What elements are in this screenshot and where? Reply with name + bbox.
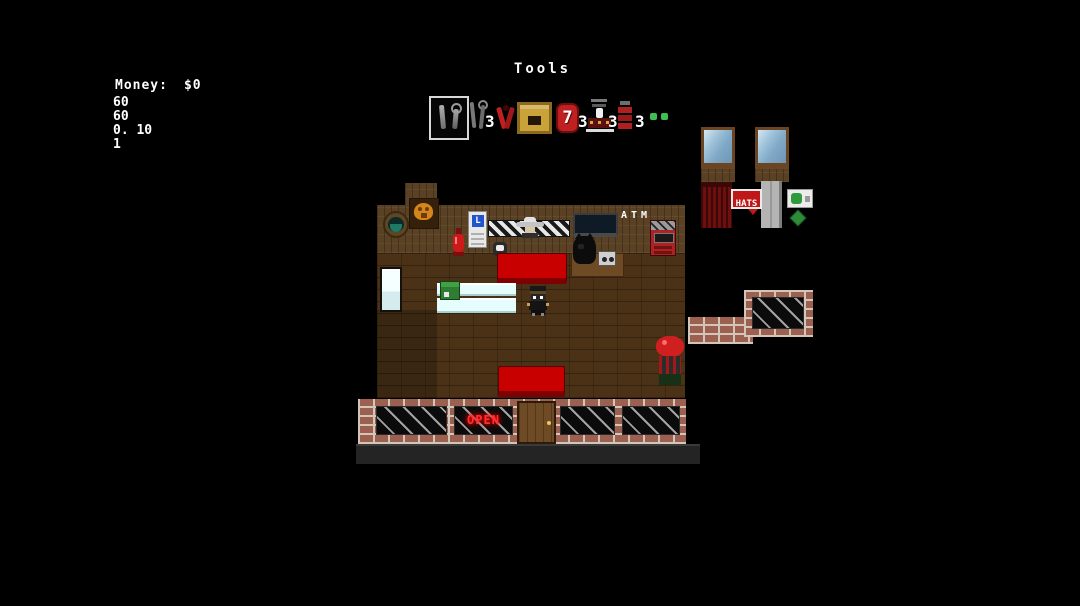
flower-highlight (662, 340, 667, 345)
cat-ear (586, 233, 594, 239)
grey-door[interactable] (761, 181, 782, 228)
storefront-window (622, 406, 680, 435)
wrench-icon (439, 105, 446, 129)
flower-pot (659, 356, 681, 374)
potted-flower (656, 336, 684, 386)
vendor-body (522, 233, 538, 238)
vendor-character[interactable] (516, 217, 544, 238)
dark-window (752, 297, 804, 329)
pet-face (496, 245, 504, 251)
red-couch (497, 253, 567, 284)
plant-icon (791, 193, 802, 204)
hats-sign-arrow-icon (748, 209, 758, 215)
atm-slot (654, 246, 672, 249)
screwdriver-icon (452, 109, 459, 129)
register-top (441, 282, 459, 287)
doorknob-icon (547, 421, 551, 425)
hats-sign-text: HATS (736, 199, 758, 209)
shelf-bar-icon (618, 123, 632, 129)
green-diamond-icon (790, 210, 807, 227)
extinguisher-highlight (455, 237, 457, 244)
floor-shadow (377, 310, 437, 398)
stat-line: 1 (113, 138, 152, 152)
player-character[interactable] (527, 286, 549, 318)
side-door[interactable] (380, 267, 402, 312)
money-value: $0 (184, 78, 202, 93)
register-key (444, 292, 449, 297)
green-dot-icon[interactable] (661, 113, 668, 120)
black-cat[interactable] (573, 236, 596, 264)
cat-highlight (578, 244, 584, 249)
green-dot-icon[interactable] (650, 113, 657, 120)
pretzel-sign (409, 198, 439, 229)
gold-dot-icon (590, 121, 593, 124)
toolbar-slot-crate[interactable] (517, 102, 552, 134)
toolbar-title: Tools (495, 61, 590, 77)
shelf-top-icon (620, 101, 630, 105)
stats-block: 60 60 0. 10 1 (113, 96, 152, 152)
hats-sign: HATS (731, 189, 762, 209)
sidewalk (356, 444, 700, 464)
display-counter-bottom (437, 298, 516, 313)
stat-line: 60 (113, 96, 152, 110)
machine-marquee-icon (591, 99, 607, 102)
storefront-window-open: OPEN (454, 406, 513, 435)
upper-window (701, 127, 735, 170)
radio-speaker (602, 257, 607, 262)
grey-door-seam (770, 181, 772, 228)
front-door[interactable] (517, 401, 556, 444)
atm-top-panel (651, 221, 675, 230)
plant-sign (787, 189, 813, 208)
atm-display (654, 233, 674, 243)
pretzel-hole (425, 207, 429, 211)
money-readout: Money: $0 (115, 78, 202, 93)
crate-highlight (520, 105, 549, 109)
toolbar-slot-red-pliers[interactable] (497, 104, 515, 132)
radio[interactable] (598, 251, 616, 266)
wood-band (701, 169, 735, 182)
hat-rack[interactable] (701, 182, 732, 228)
machine-figure-icon (596, 108, 603, 118)
cash-register[interactable] (440, 281, 460, 300)
pretzel-hole (418, 207, 422, 211)
slot-count: 3 (635, 112, 645, 131)
player-hand (546, 303, 549, 306)
toolbar-slot-red-shelf[interactable] (617, 101, 633, 133)
stat-line: 0. 10 (113, 124, 152, 138)
money-label: Money: (115, 78, 168, 93)
upper-window (755, 127, 789, 170)
red-couch (498, 366, 565, 397)
shelf-bar-icon (618, 107, 632, 113)
slot-count: 3 (485, 112, 495, 131)
shelf-bar-icon (618, 115, 632, 121)
toolbar-slot-seven-chip[interactable]: 7 (556, 103, 579, 133)
cat-ear (575, 233, 583, 239)
mini-fridge[interactable]: L (468, 211, 487, 248)
radio-speaker (609, 257, 614, 262)
crate-slot-icon (528, 116, 541, 125)
flower-bloom (656, 336, 684, 357)
player-body (529, 301, 547, 310)
atm-machine[interactable] (650, 220, 676, 256)
pliers-joint-icon (503, 105, 509, 111)
toolbar-slot-tools-selected[interactable] (429, 96, 469, 140)
player-foot (532, 313, 535, 316)
player-eye (540, 296, 543, 299)
atm-slot (654, 251, 672, 254)
player-eye (533, 296, 536, 299)
atm-sign: ATM (621, 210, 651, 221)
player-foot (541, 313, 544, 316)
storefront-window (560, 406, 615, 435)
pretzel-hole (421, 213, 427, 218)
game-screen: Money: $0 60 60 0. 10 1 Tools 3 7 3 (0, 0, 1080, 606)
fridge-logo-icon: L (472, 215, 484, 227)
flower-base (659, 374, 681, 385)
fire-extinguisher[interactable] (451, 228, 466, 257)
sign-mark (805, 196, 810, 202)
fridge-vents (471, 232, 484, 245)
open-sign: OPEN (467, 413, 500, 427)
brick-window-block (744, 290, 813, 337)
wrench-icon (470, 102, 477, 128)
stat-line: 60 (113, 110, 152, 124)
seven-chip-glyph: 7 (562, 108, 572, 128)
cauldron[interactable] (383, 211, 409, 238)
gold-dot-icon (598, 121, 601, 124)
player-hand (527, 303, 530, 306)
extinguisher-base (453, 252, 464, 256)
machine-marquee-icon (592, 104, 606, 107)
storefront-window (376, 406, 447, 435)
